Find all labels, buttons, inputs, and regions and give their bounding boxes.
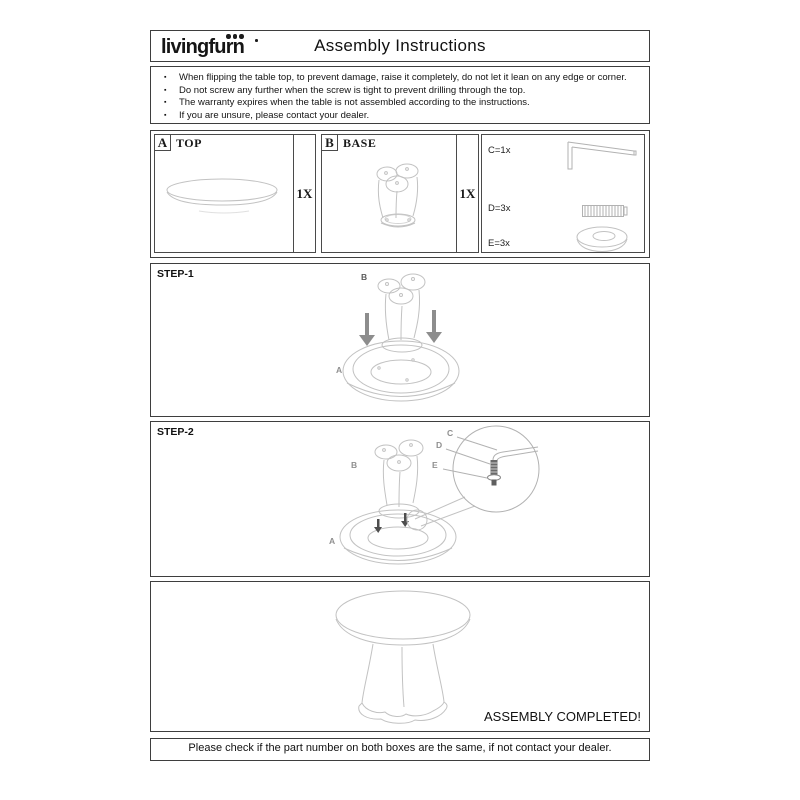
warning-list: When flipping the table top, to prevent … [151,67,649,122]
step1-label: STEP-1 [157,268,194,280]
screw-icon [582,203,628,219]
warning-item: The warranty expires when the table is n… [159,97,641,110]
warning-item: Do not screw any further when the screw … [159,85,641,98]
warnings-panel: When flipping the table top, to prevent … [150,66,650,124]
base-illustration [367,160,431,240]
step2-panel: STEP-2 B A C D E [150,421,650,577]
table-top-illustration [163,175,285,217]
part-a-box: A TOP 1X [154,134,316,253]
step1-panel: STEP-1 B A [150,263,650,417]
step2-label: STEP-2 [157,426,194,438]
completed-panel: ASSEMBLY COMPLETED! [150,581,650,732]
hardware-box: C=1x D=3x E=3x [481,134,645,253]
hardware-d-label: D=3x [488,203,510,214]
document: livingfurn Assembly Instructions When fl… [150,30,650,770]
assembly-completed-label: ASSEMBLY COMPLETED! [484,709,641,724]
part-a-qty: 1X [293,135,315,252]
part-b-title: BASE [343,136,376,151]
part-b-qty: 1X [456,135,478,252]
washer-icon [574,225,632,252]
assembled-table-illustration [333,587,473,727]
allen-key-icon [564,139,640,172]
down-arrow-icon [359,313,375,346]
part-a-letter: A [155,135,171,151]
page-title: Assembly Instructions [151,31,649,63]
step2-diagram [329,427,543,575]
hardware-c-label: C=1x [488,145,510,156]
warning-item: If you are unsure, please contact your d… [159,110,641,123]
header: livingfurn Assembly Instructions [150,30,650,62]
down-arrow-icon [426,310,442,343]
part-b-box: B BASE 1X [321,134,479,253]
step1-diagram [301,268,521,416]
hardware-e-label: E=3x [488,238,510,249]
footer-note: Please check if the part number on both … [150,738,650,761]
part-a-title: TOP [176,136,202,151]
assembly-instructions-page: livingfurn Assembly Instructions When fl… [0,0,800,800]
warning-item: When flipping the table top, to prevent … [159,72,641,85]
part-b-letter: B [322,135,338,151]
parts-panel: A TOP 1X B BASE 1X [150,130,650,258]
